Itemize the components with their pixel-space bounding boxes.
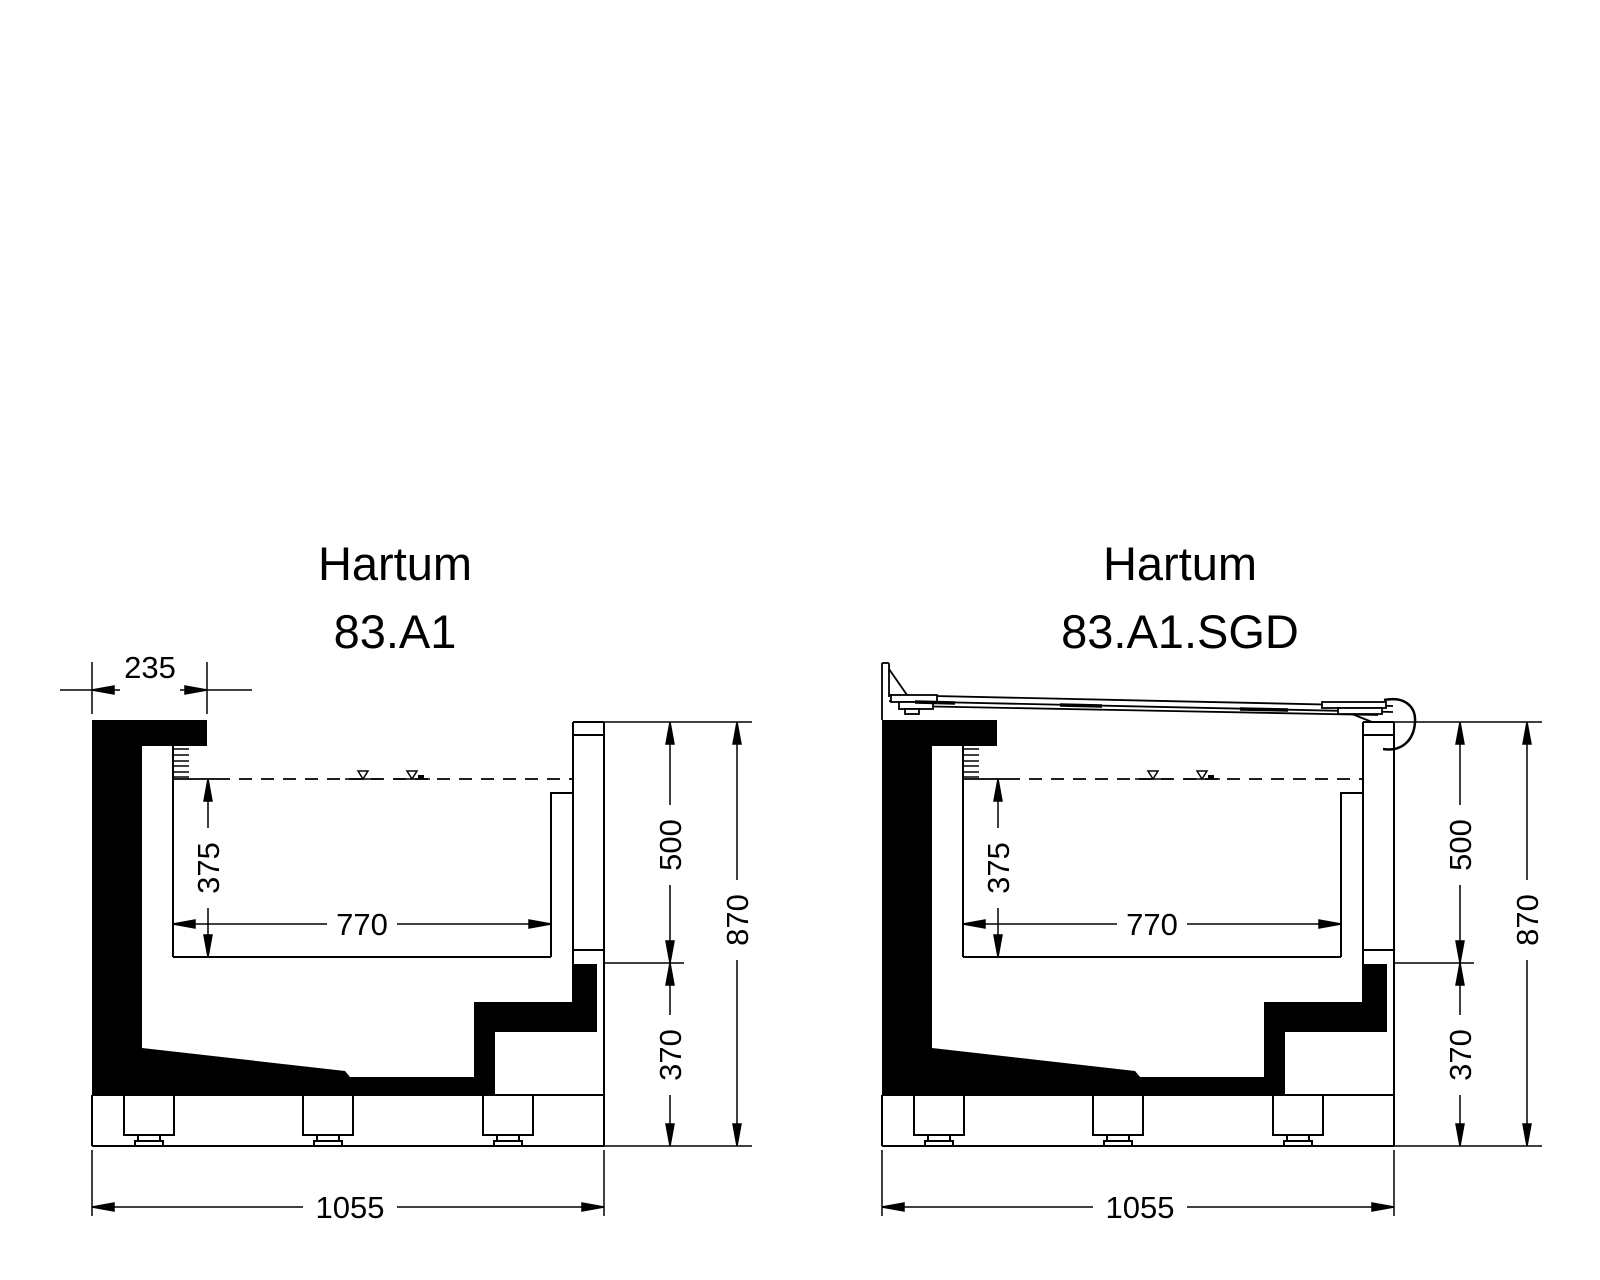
dim-upper-height-sgd: 500 <box>1443 819 1478 871</box>
drawing-83a1-sgd: Hartum 83.A1.SGD <box>882 537 1545 1225</box>
drawing-83a1: Hartum 83.A1 235 375 770 500 370 870 105… <box>60 537 755 1225</box>
dim-tub-width: 770 <box>336 907 388 942</box>
dim-lower-height: 370 <box>653 1029 688 1081</box>
dim-total-width: 1055 <box>316 1190 385 1225</box>
freezer-cross-section-drawing: Hartum 83.A1 235 375 770 500 370 870 105… <box>0 0 1600 1280</box>
title-variant-left: 83.A1 <box>334 605 457 658</box>
title-model-left: Hartum <box>318 537 472 590</box>
dim-tub-depth-sgd: 375 <box>981 842 1016 894</box>
dim-lower-height-sgd: 370 <box>1443 1029 1478 1081</box>
dim-total-height: 870 <box>720 894 755 946</box>
dim-total-width-sgd: 1055 <box>1106 1190 1175 1225</box>
dim-flange-width: 235 <box>124 650 176 685</box>
dim-upper-height: 500 <box>653 819 688 871</box>
dim-tub-depth: 375 <box>191 842 226 894</box>
dim-tub-width-sgd: 770 <box>1126 907 1178 942</box>
title-model-right: Hartum <box>1103 537 1257 590</box>
title-variant-right: 83.A1.SGD <box>1061 605 1299 658</box>
technical-drawing-sheet: Hartum 83.A1 235 375 770 500 370 870 105… <box>0 0 1600 1280</box>
dim-total-height-sgd: 870 <box>1510 894 1545 946</box>
